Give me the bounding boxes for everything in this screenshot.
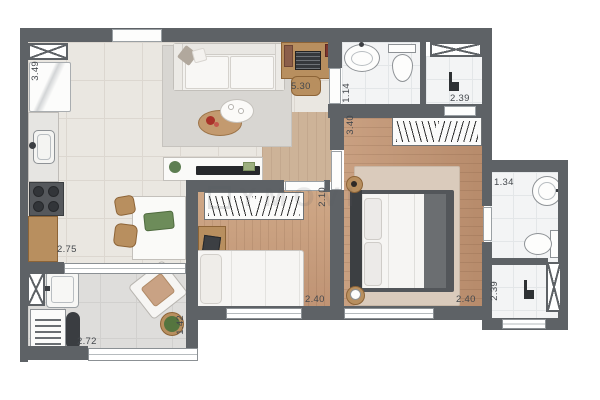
wall <box>20 28 28 362</box>
plant-tray-icon <box>243 162 255 171</box>
coffee-table-white <box>220 99 254 123</box>
sink-basin <box>37 134 51 160</box>
dim-bathroom-shower: 2.39 <box>450 93 470 104</box>
dim-master-width: 2.40 <box>456 294 476 305</box>
single-bed <box>196 250 304 308</box>
pillow <box>364 198 382 240</box>
master-window <box>344 308 434 319</box>
wall <box>328 104 342 118</box>
burner-icon <box>33 201 44 212</box>
wall <box>186 192 198 352</box>
entry-door <box>112 29 162 42</box>
terrace-glass-railing <box>88 348 198 361</box>
wall <box>186 180 284 192</box>
shaft-icon <box>27 272 45 306</box>
wall <box>20 28 490 42</box>
wall <box>420 42 426 106</box>
sofa <box>173 43 285 91</box>
cooktop <box>29 182 64 216</box>
faucet-icon <box>29 142 36 149</box>
ensuite-window <box>502 319 546 329</box>
wall <box>330 118 344 150</box>
basin-bowl <box>538 182 556 200</box>
master-door <box>331 151 342 190</box>
laptop-icon <box>295 51 321 70</box>
dim-master-length: 3.40 <box>345 115 356 135</box>
kitchen-sink <box>33 130 55 164</box>
pillow <box>200 254 222 304</box>
shower-door <box>444 106 476 116</box>
kitchen-cabinet <box>28 216 58 262</box>
toilet-bowl <box>524 233 552 255</box>
wall <box>482 168 492 206</box>
wall <box>20 346 88 360</box>
dim-kitchen-length: 3.49 <box>30 61 41 81</box>
shaft-icon <box>546 262 562 312</box>
washing-machine <box>30 309 66 351</box>
dim-terrace-width: 2.72 <box>77 336 97 347</box>
dim-living-length: 5.30 <box>291 81 311 92</box>
dim-kitchen-width: 2.75 <box>57 244 77 255</box>
armchair-cushion <box>140 273 175 308</box>
decor-icon <box>351 181 357 187</box>
burner-icon <box>48 201 59 212</box>
pillow <box>364 242 382 286</box>
shower-head-icon <box>524 290 534 299</box>
ensuite-door <box>483 207 492 241</box>
cup-icon <box>238 108 244 114</box>
headboard <box>350 190 362 292</box>
dim-terrace-depth: 1.42 <box>175 315 186 335</box>
red-flowers-icon <box>214 122 219 127</box>
dim-bedroom2-length: 2.10 <box>317 187 328 207</box>
terrace-sliding-door <box>64 263 186 274</box>
hangers-icon <box>396 121 436 142</box>
hangers-icon <box>208 196 253 216</box>
master-bed <box>350 190 454 292</box>
hangers-icon <box>438 121 478 142</box>
floor-plan: 3.49 2.75 5.30 1.14 2.39 3.40 2.10 2.40 … <box>0 0 600 400</box>
shaft-icon <box>430 42 482 57</box>
wall <box>328 42 342 68</box>
wall <box>490 258 548 265</box>
cup-icon <box>228 104 234 110</box>
laundry-tub <box>46 271 79 308</box>
wall <box>482 242 492 318</box>
tub-basin <box>51 276 74 303</box>
washbasin <box>344 44 380 72</box>
foot-throw <box>424 194 446 288</box>
stool <box>114 194 137 216</box>
books <box>284 45 293 67</box>
master-wardrobe <box>392 117 482 146</box>
plant-icon <box>169 161 181 173</box>
herb-board <box>143 210 175 231</box>
stool <box>113 223 139 249</box>
dim-bathroom-width: 1.14 <box>341 83 352 103</box>
basin-bowl <box>351 51 373 66</box>
wall <box>482 28 492 168</box>
dim-ensuite-shower: 2.39 <box>489 281 500 301</box>
dim-bedroom2-width: 2.40 <box>305 294 325 305</box>
lamp-icon <box>350 289 361 300</box>
toilet-tank <box>388 44 416 53</box>
shower-head-icon <box>449 82 459 91</box>
wall <box>482 160 568 172</box>
hangers-icon <box>255 196 300 216</box>
bedroom2-window <box>226 308 302 319</box>
burner-icon <box>48 186 59 197</box>
bathroom-door <box>329 68 341 104</box>
bedroom2-wardrobe <box>204 192 304 220</box>
louver-grille-icon <box>35 315 61 345</box>
dim-ensuite-width: 1.34 <box>494 177 514 188</box>
faucet-icon <box>359 42 364 47</box>
shaft-icon <box>28 43 68 60</box>
sofa-cushion <box>230 56 274 89</box>
burner-icon <box>33 186 44 197</box>
wall <box>330 190 344 308</box>
